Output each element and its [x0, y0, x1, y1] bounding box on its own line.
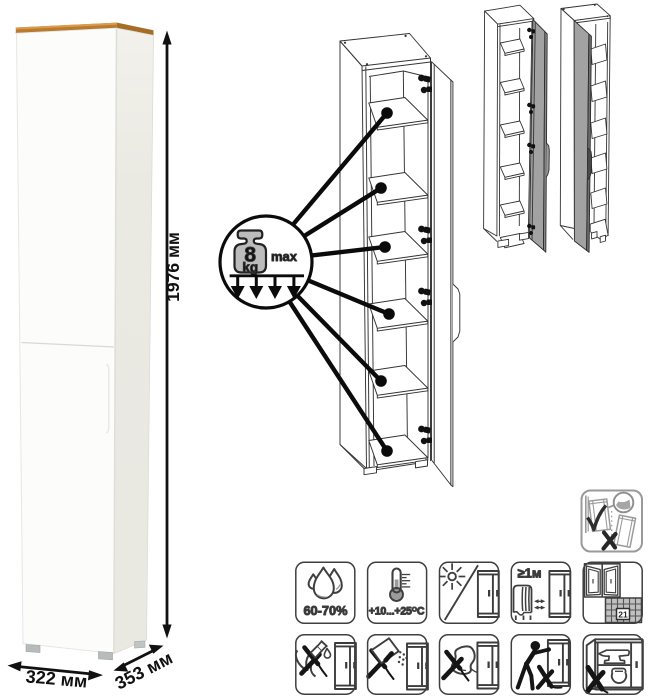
svg-text:≥1м: ≥1м [518, 566, 542, 581]
svg-text:21: 21 [618, 609, 628, 619]
svg-text:max: max [271, 249, 298, 264]
svg-text:kg: kg [242, 260, 258, 275]
svg-text:322 мм: 322 мм [25, 666, 88, 691]
svg-text:60-70%: 60-70% [303, 603, 348, 618]
svg-text:1976 мм: 1976 мм [163, 232, 183, 302]
svg-text:+10...+25OC: +10...+25OC [369, 606, 425, 618]
